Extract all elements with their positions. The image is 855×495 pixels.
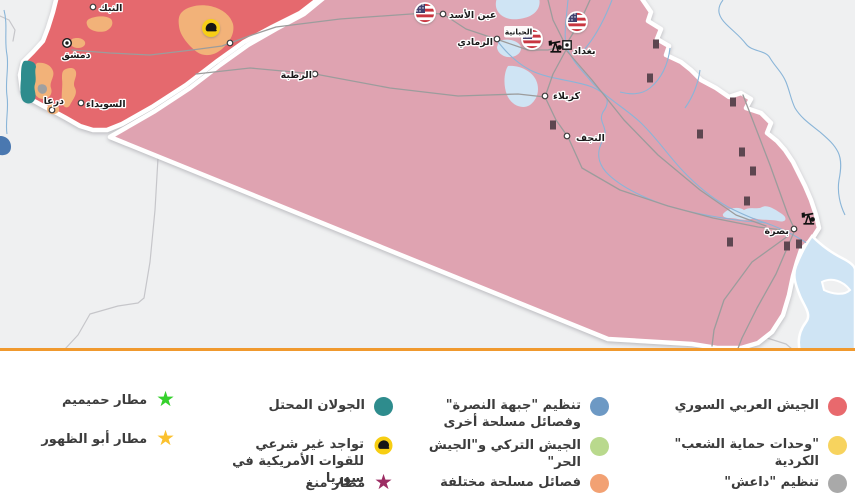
legend-label: تنظيم "جبهة النصرة" وفصائل مسلحة أخرى bbox=[431, 397, 581, 431]
city-label-suwayda: السويداء bbox=[86, 99, 126, 110]
legend-circle-turkish-fsa bbox=[590, 437, 609, 456]
legend-circle-nusra bbox=[590, 397, 609, 416]
city-label-ain-al-asad: عين الأسد bbox=[449, 9, 496, 21]
legend-label: تنظيم "داعش" bbox=[724, 474, 819, 491]
city-marker-suwayda bbox=[78, 100, 84, 106]
legend-item: ★ مطار أبو الظهور bbox=[30, 431, 175, 448]
city-label-ramadi: الرمادي bbox=[457, 37, 493, 48]
us-flag-icon bbox=[567, 12, 587, 32]
legend-star-icon: ★ bbox=[374, 473, 393, 491]
legend-label: الجولان المحتل bbox=[269, 397, 366, 414]
legend-item: تنظيم "داعش" bbox=[662, 474, 847, 493]
militia-position-icon bbox=[727, 238, 733, 247]
militia-position-icon bbox=[653, 40, 659, 49]
militia-position-icon bbox=[730, 98, 736, 107]
militia-position-icon bbox=[750, 167, 756, 176]
map-svg: النبك دمشق السويداء درعا عين الأسد الرما… bbox=[0, 0, 855, 351]
legend-label: الجيش التركي و"الجيش الحر" bbox=[424, 437, 581, 471]
militia-position-icon bbox=[739, 148, 745, 157]
infographic: النبك دمشق السويداء درعا عين الأسد الرما… bbox=[0, 0, 855, 495]
legend-item: تنظيم "جبهة النصرة" وفصائل مسلحة أخرى bbox=[431, 397, 609, 431]
city-marker-baghdad bbox=[563, 41, 571, 49]
legend-star-icon: ★ bbox=[156, 429, 175, 447]
golan-region bbox=[20, 61, 36, 104]
legend-label: فصائل مسلحة مختلفة bbox=[440, 474, 581, 491]
city-marker-ain-al-asad bbox=[440, 11, 446, 17]
city-marker-nabk bbox=[90, 4, 96, 10]
city-marker-rutba bbox=[312, 71, 318, 77]
legend-item: فصائل مسلحة مختلفة bbox=[424, 474, 609, 493]
city-label-damascus: دمشق bbox=[62, 50, 91, 61]
city-label-nabk: النبك bbox=[99, 3, 122, 14]
us-helmet-icon bbox=[202, 19, 220, 37]
legend-circle-ypg bbox=[828, 436, 847, 455]
militia-position-icon bbox=[550, 121, 556, 130]
legend-item: "وحدات حماية الشعب" الكردية bbox=[662, 436, 847, 470]
city-label-najaf: النجف bbox=[576, 133, 605, 144]
city-marker-ramadi bbox=[494, 36, 500, 42]
legend-item: الجولان المحتل bbox=[223, 397, 393, 416]
militia-position-icon bbox=[796, 240, 802, 249]
legend: الجيش العربي السوري "وحدات حماية الشعب" … bbox=[0, 351, 855, 495]
city-marker-najaf bbox=[564, 133, 570, 139]
us-helmet-icon bbox=[373, 435, 394, 456]
city-label-rutba: الرطبة bbox=[281, 70, 312, 81]
legend-label: مطار منغ bbox=[305, 475, 365, 492]
legend-item: ★ مطار منغ bbox=[223, 475, 393, 492]
city-label-baghdad: بغداد bbox=[573, 46, 596, 57]
legend-label: مطار حميميم bbox=[62, 392, 147, 409]
city-marker-damascus bbox=[63, 39, 72, 48]
city-marker-karbala bbox=[542, 93, 548, 99]
legend-item: ★ مطار حميميم bbox=[30, 392, 175, 409]
legend-label: الجيش العربي السوري bbox=[675, 397, 819, 414]
city-label-karbala: كربلاء bbox=[553, 91, 581, 102]
militia-position-icon bbox=[697, 130, 703, 139]
legend-star-icon: ★ bbox=[156, 390, 175, 408]
legend-label: مطار أبو الظهور bbox=[41, 431, 147, 448]
city-marker-tanf-crossing bbox=[227, 40, 233, 46]
city-label-basra: بصرة bbox=[765, 226, 789, 237]
legend-item: الجيش العربي السوري bbox=[662, 397, 847, 416]
us-flag-icon bbox=[415, 3, 435, 23]
city-marker-basra bbox=[791, 226, 797, 232]
legend-circle-isis bbox=[828, 474, 847, 493]
legend-circle-various-factions bbox=[590, 474, 609, 493]
city-label-habbaniyah: الحبانية bbox=[505, 28, 532, 37]
militia-position-icon bbox=[647, 74, 653, 83]
city-label-daraa: درعا bbox=[44, 96, 65, 107]
map-canvas: النبك دمشق السويداء درعا عين الأسد الرما… bbox=[0, 0, 855, 351]
legend-circle-golan bbox=[374, 397, 393, 416]
legend-label: "وحدات حماية الشعب" الكردية bbox=[662, 436, 819, 470]
city-marker-daraa bbox=[49, 107, 55, 113]
militia-position-icon bbox=[744, 197, 750, 206]
legend-circle-syrian-army bbox=[828, 397, 847, 416]
legend-item: الجيش التركي و"الجيش الحر" bbox=[424, 437, 609, 471]
militia-position-icon bbox=[784, 242, 790, 251]
city-label-habbaniyah-box: الحبانية bbox=[504, 26, 533, 38]
